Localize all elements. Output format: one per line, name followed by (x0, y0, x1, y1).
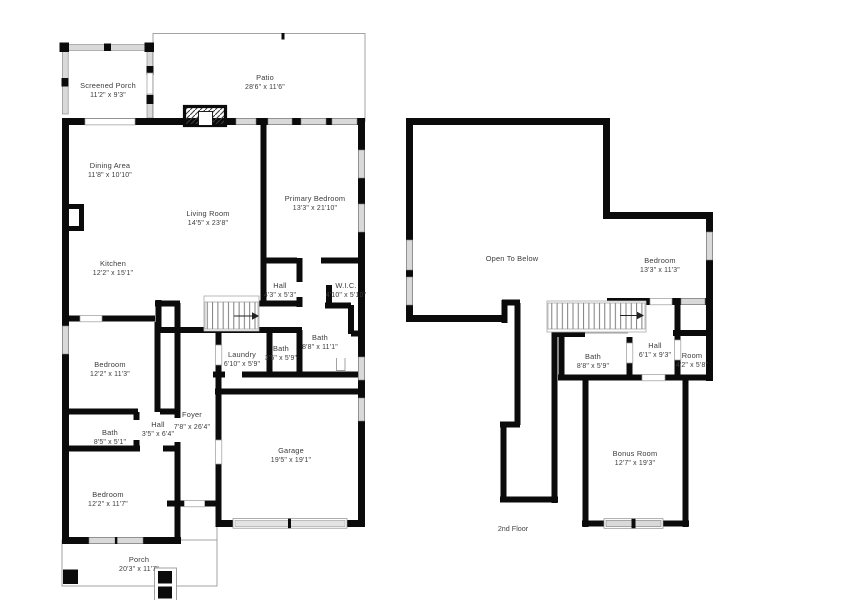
door-opening (642, 374, 665, 380)
window (358, 398, 364, 421)
screen-post (60, 43, 70, 53)
room-label-porch: Porch (129, 555, 149, 564)
room-label-primary-bedroom: Primary Bedroom (285, 194, 346, 203)
door-opening (147, 73, 153, 94)
room-dims-bedroom-front: 12'2" x 11'7" (88, 501, 128, 508)
room-dims-dining: 11'8" x 10'10" (88, 172, 132, 179)
window (332, 118, 357, 124)
garage-door-tick (288, 519, 291, 529)
door-opening (215, 345, 221, 365)
room-dims-hall-upper: 4'3" x 5'3" (264, 292, 297, 299)
window (301, 118, 326, 124)
porch-post (158, 571, 172, 584)
floorplan-svg: Screened Porch 11'2" x 9'3" Patio 28'6" … (0, 0, 863, 600)
room-dims-laundry: 6'10" x 5'9" (224, 361, 261, 368)
second-floor: Open To Below Bedroom 13'3" x 11'3" Bath… (406, 118, 713, 533)
room-dims-garage: 19'5" x 19'1" (271, 457, 312, 464)
porch-post (63, 570, 78, 585)
room-label-living: Living Room (186, 209, 229, 218)
window (358, 357, 364, 380)
room-dims-room-2f: 4'2" x 5'8" (676, 362, 709, 369)
room-label-garage: Garage (278, 446, 304, 455)
door-opening (626, 343, 632, 363)
room-label-bath-primary: Bath (312, 333, 328, 342)
room-dims-bonus: 12'7" x 19'3" (615, 460, 656, 467)
room-dims-kitchen: 12'2" x 15'1" (93, 270, 134, 277)
room-label-patio: Patio (256, 73, 274, 82)
room-dims-hall-2f: 6'1" x 9'3" (639, 352, 672, 359)
room-dims-patio: 28'6" x 11'6" (245, 84, 285, 91)
interior-walls-2f (500, 300, 713, 527)
room-dims-wic: 4'10" x 5'10" (326, 292, 367, 299)
room-label-bedroom-mid: Bedroom (94, 360, 125, 369)
room-label-kitchen: Kitchen (100, 259, 126, 268)
first-floor: Screened Porch 11'2" x 9'3" Patio 28'6" … (60, 33, 367, 600)
room-dims-primary-bedroom: 13'3" x 21'10" (293, 205, 338, 212)
window (358, 150, 364, 178)
screen-post (104, 44, 111, 52)
fireplace (185, 107, 226, 126)
garage-door (233, 519, 347, 529)
room-label-dining: Dining Area (90, 161, 131, 170)
room-label-room-2f: Room (682, 351, 703, 360)
bath-partition (337, 358, 346, 371)
floorplan-page: Screened Porch 11'2" x 9'3" Patio 28'6" … (0, 0, 863, 600)
room-label-foyer: Foyer (182, 410, 202, 419)
screen-post (147, 95, 154, 104)
room-label-laundry: Laundry (228, 350, 256, 359)
window (406, 277, 412, 305)
room-dims-porch: 20'3" x 11'7" (119, 566, 159, 573)
screen-post (62, 78, 69, 87)
window (236, 118, 256, 124)
window (358, 204, 364, 232)
window (681, 298, 705, 304)
screen-post (145, 43, 155, 53)
room-label-bedroom-front: Bedroom (92, 490, 123, 499)
staircase-second-floor (547, 301, 646, 332)
room-dims-screened-porch: 11'2" x 9'3" (90, 92, 126, 99)
room-label-hall-2f: Hall (648, 341, 662, 350)
room-dims-bedroom-mid: 12'2" x 11'3" (90, 371, 130, 378)
patio-tick (282, 33, 285, 40)
room-dims-bath-primary: 8'8" x 11'1" (302, 344, 338, 351)
room-dims-bath-2f: 8'8" x 5'9" (577, 363, 610, 370)
fireplace-firebox (199, 112, 213, 126)
room-label-wic: W.I.C. (335, 281, 356, 290)
cased-opening (80, 315, 102, 321)
window (706, 232, 712, 260)
window (268, 118, 292, 124)
room-label-open-to-below: Open To Below (486, 254, 539, 263)
room-label-bonus: Bonus Room (613, 449, 658, 458)
door-opening (215, 440, 221, 464)
window (117, 537, 143, 543)
room-dims-bedroom-2f: 13'3" x 11'3" (640, 267, 680, 274)
room-dims-bath-hall: 8'5" x 5'1" (94, 439, 127, 446)
room-label-bath-small: Bath (273, 344, 289, 353)
room-label-hall-upper: Hall (273, 281, 287, 290)
room-dims-foyer: 7'8" x 26'4" (174, 424, 211, 431)
floor-caption-2nd: 2nd Floor (498, 524, 529, 533)
window (406, 240, 412, 270)
staircase-first-floor (204, 296, 259, 331)
window (89, 537, 115, 543)
room-label-screened-porch: Screened Porch (80, 81, 136, 90)
door-opening (674, 340, 680, 360)
room-dims-hall-lower: 3'5" x 6'4" (142, 431, 175, 438)
front-door-opening (185, 500, 205, 506)
room-label-bath-2f: Bath (585, 352, 601, 361)
porch-outline (62, 507, 217, 600)
room-dims-bath-small: 3'5" x 5'9" (265, 355, 298, 362)
room-label-hall-lower: Hall (151, 420, 165, 429)
window-mullion-tick (632, 519, 636, 529)
window (62, 326, 68, 354)
door-opening (85, 119, 135, 125)
door-opening (650, 298, 672, 304)
room-dims-living: 14'5" x 23'8" (188, 220, 229, 227)
window-mullion-tick (115, 537, 117, 544)
room-label-bedroom-2f: Bedroom (644, 256, 675, 265)
porch-post (158, 587, 172, 599)
room-label-bath-hall: Bath (102, 428, 118, 437)
